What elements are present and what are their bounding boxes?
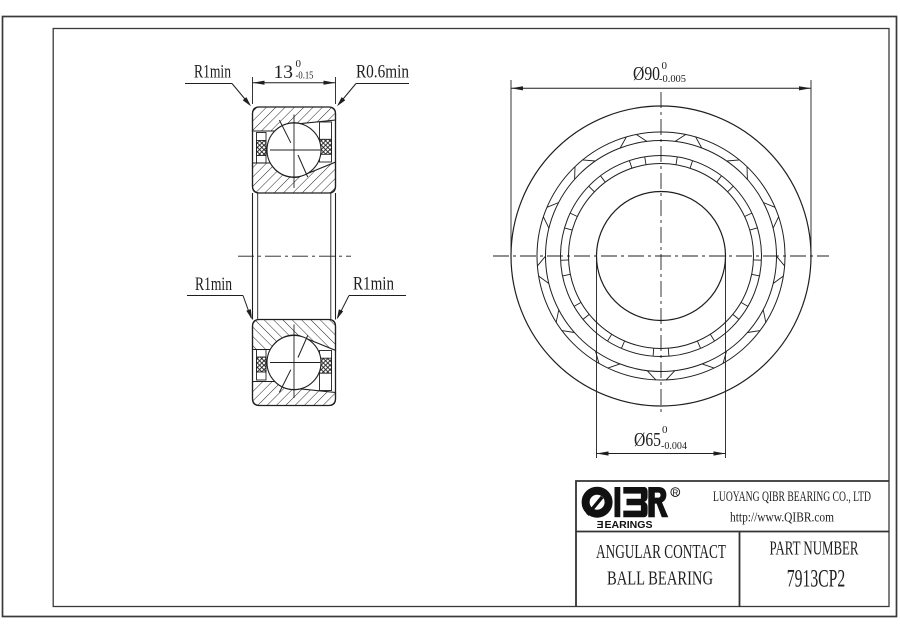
svg-text:ANGULAR CONTACT: ANGULAR CONTACT [596, 541, 726, 563]
svg-text:R1min: R1min [194, 62, 231, 83]
svg-text:13: 13 [274, 62, 294, 83]
svg-text:R0.6min: R0.6min [356, 62, 409, 83]
svg-text:R1min: R1min [195, 274, 232, 295]
svg-text:E: E [597, 520, 604, 531]
svg-text:R: R [672, 488, 678, 497]
svg-text:7913CP2: 7913CP2 [787, 564, 846, 593]
svg-text:Ø65: Ø65 [634, 429, 661, 451]
svg-text:0: 0 [296, 58, 302, 70]
svg-text:http://www.QIBR.com: http://www.QIBR.com [730, 510, 834, 525]
svg-text:PART NUMBER: PART NUMBER [770, 537, 859, 559]
svg-text:EARINGS: EARINGS [605, 520, 653, 531]
svg-text:0: 0 [662, 424, 668, 436]
svg-text:-0.15: -0.15 [296, 70, 314, 82]
svg-text:0: 0 [662, 60, 668, 72]
svg-text:BALL BEARING: BALL BEARING [607, 568, 713, 590]
svg-text:R1min: R1min [353, 274, 394, 295]
svg-text:Ø90: Ø90 [633, 63, 660, 85]
svg-text:-0.005: -0.005 [659, 73, 686, 85]
svg-text:LUOYANG QIBR BEARING CO., LTD: LUOYANG QIBR BEARING CO., LTD [713, 489, 871, 505]
svg-text:-0.004: -0.004 [661, 440, 687, 452]
